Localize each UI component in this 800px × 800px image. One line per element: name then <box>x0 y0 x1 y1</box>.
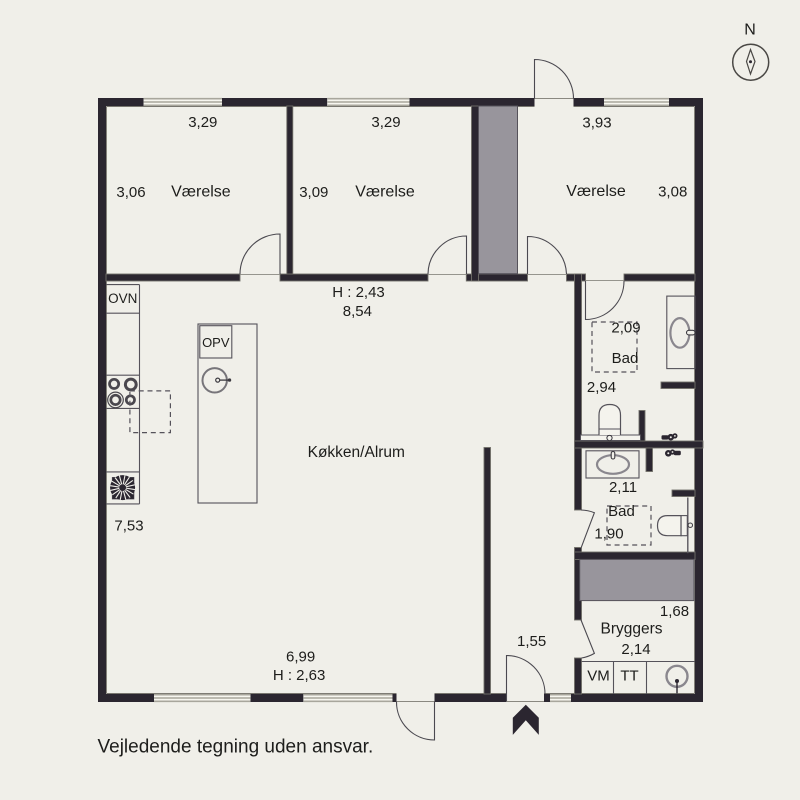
svg-text:3,09: 3,09 <box>299 184 328 201</box>
svg-text:1,68: 1,68 <box>660 603 689 620</box>
svg-text:N: N <box>744 22 756 39</box>
svg-text:Køkken/Alrum: Køkken/Alrum <box>308 444 405 461</box>
svg-text:2,09: 2,09 <box>611 320 640 337</box>
svg-text:Bad: Bad <box>612 350 639 367</box>
svg-text:H : 2,63: H : 2,63 <box>273 667 326 684</box>
svg-text:6,99: 6,99 <box>286 649 315 666</box>
svg-text:3,29: 3,29 <box>371 114 400 131</box>
svg-text:Vejledende tegning uden ansvar: Vejledende tegning uden ansvar. <box>98 737 374 758</box>
svg-text:8,54: 8,54 <box>343 303 372 320</box>
svg-text:Bryggers: Bryggers <box>600 621 662 638</box>
svg-text:3,29: 3,29 <box>188 114 217 131</box>
svg-text:3,06: 3,06 <box>116 184 145 201</box>
svg-text:2,14: 2,14 <box>621 641 650 658</box>
svg-text:2,11: 2,11 <box>609 479 637 496</box>
svg-text:H : 2,43: H : 2,43 <box>332 284 385 301</box>
svg-text:1,90: 1,90 <box>594 526 623 543</box>
svg-text:OPV: OPV <box>202 335 230 350</box>
svg-text:OVN: OVN <box>108 291 137 306</box>
svg-text:TT: TT <box>620 668 638 685</box>
svg-text:7,53: 7,53 <box>114 518 143 535</box>
svg-text:1,55: 1,55 <box>517 633 546 650</box>
svg-text:2,94: 2,94 <box>587 379 616 396</box>
svg-text:Værelse: Værelse <box>566 183 626 200</box>
svg-text:3,93: 3,93 <box>582 115 611 132</box>
svg-text:Værelse: Værelse <box>355 184 415 201</box>
svg-text:3,08: 3,08 <box>658 184 687 201</box>
svg-text:VM: VM <box>587 668 610 685</box>
svg-text:Værelse: Værelse <box>171 184 231 201</box>
svg-text:Bad: Bad <box>608 503 635 520</box>
